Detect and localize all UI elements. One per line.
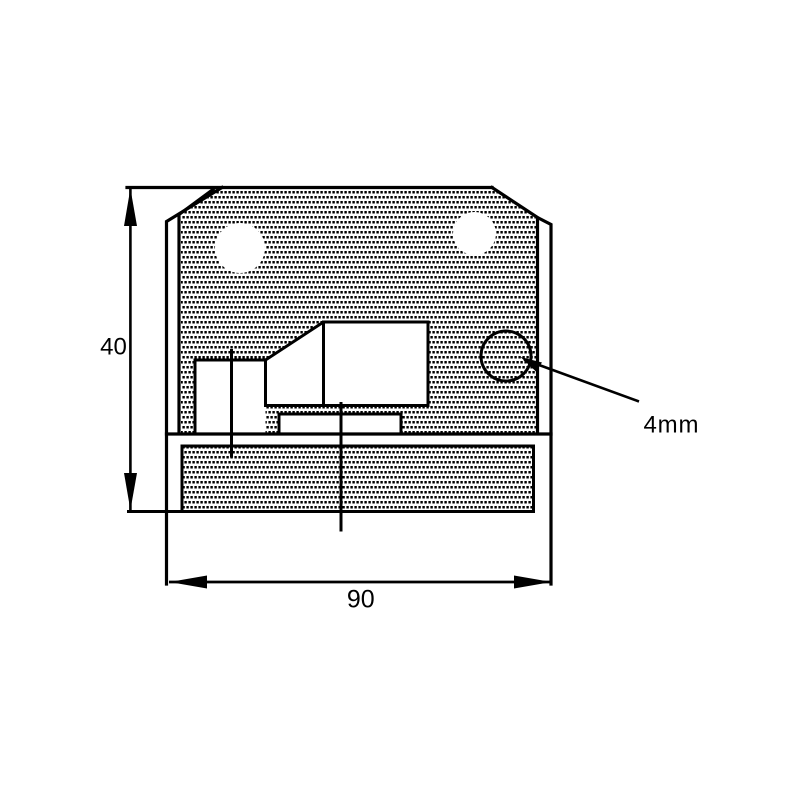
svg-text:4mm: 4mm [644,412,700,439]
svg-text:40: 40 [100,334,127,361]
svg-text:90: 90 [347,586,375,614]
